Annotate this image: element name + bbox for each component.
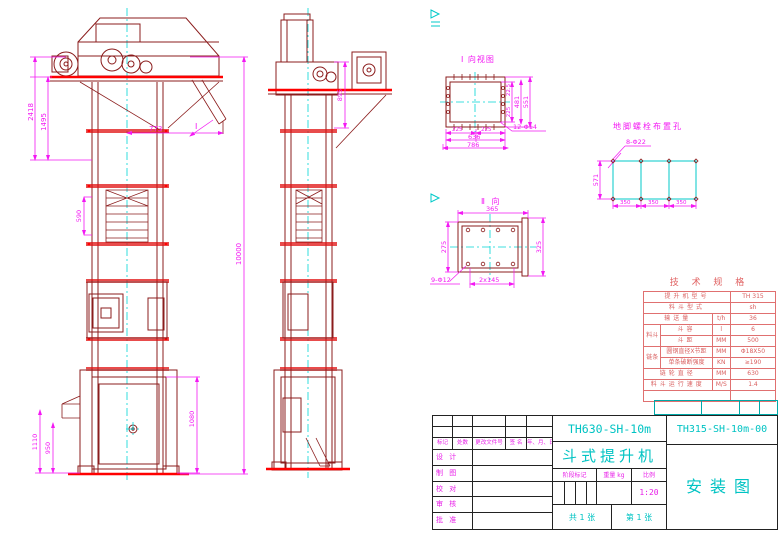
dim-571: 571 (592, 174, 600, 186)
view-i: I 向视图 225 225 636 786 22.5 225 481 551 1… (440, 54, 546, 150)
spec-label: 单条破断强度 (661, 358, 712, 369)
spec-unit: KN (712, 358, 730, 369)
view-ii: Ⅱ 向 365 325 275 2x145 9-Φ12 (430, 196, 546, 288)
rev-header-sign: 签 名 (506, 438, 527, 450)
dim-275: 275 (440, 241, 448, 253)
dim-1495: 1495 (40, 113, 48, 131)
spec-label: 斗容 (661, 325, 712, 336)
spec-unit: l (712, 325, 730, 336)
spec-label: 料斗运行速度 (644, 380, 713, 391)
table-row: 链条 圆钢直径X节距 MM Φ18X50 (644, 347, 776, 358)
scale-value: 1:20 (632, 482, 666, 504)
spec-label: 输送量 (644, 314, 713, 325)
sign-row-draft: 制 图 (433, 466, 473, 482)
dim-350b: 350 (648, 200, 659, 206)
rev-header-count: 处数 (453, 438, 473, 450)
view-mark-i: I (195, 122, 197, 131)
side-view: 895 (266, 8, 392, 478)
dim-350a: 350 (620, 200, 631, 206)
spec-value: sh (730, 303, 775, 314)
sheet-total: 共 1 张 (553, 504, 612, 530)
spec-label: 斗距 (661, 336, 712, 347)
drawing-name: 安装图 (667, 444, 777, 529)
leader-12-d14: 12-Φ14 (513, 123, 537, 131)
spec-unit: MM (712, 347, 730, 358)
dim-1110: 1110 (31, 434, 39, 451)
spec-group: 料斗 (644, 325, 661, 347)
rev-header-date: 年、月、日 (527, 438, 552, 450)
view-i-label: I 向视图 (461, 54, 495, 64)
rev-header-docno: 更改文件号 (473, 438, 506, 450)
dim-225b: 225 (481, 127, 492, 133)
cad-drawing-canvas: 2418 1495 590 773 10000 1110 950 1080 I … (0, 0, 780, 541)
dim-590: 590 (75, 210, 83, 222)
sign-row-approve: 批 准 (433, 513, 473, 529)
model-text: TH630-SH-10m (553, 416, 666, 442)
spec-table: 提升机型号 TH 315 料斗型式 sh 输送量 t/h 36 料斗 斗容 l … (643, 291, 776, 402)
spec-group: 链条 (644, 347, 661, 369)
spec-label: 料斗型式 (644, 303, 731, 314)
spec-unit: t/h (712, 314, 730, 325)
title-middle-block: TH630-SH-10m 斗式提升机 阶段标记 重量 kg 比例 1:20 共 … (552, 415, 667, 530)
dim-481: 481 (513, 96, 521, 108)
spec-table-section: 技 术 规 格 提升机型号 TH 315 料斗型式 sh 输送量 t/h 36 … (643, 275, 776, 402)
sign-row-check: 校 对 (433, 482, 473, 497)
weight-cell (597, 482, 632, 504)
revision-table: 标记 处数 更改文件号 签 名 年、月、日 设 计 制 图 校 对 审 核 批 … (432, 415, 553, 530)
spec-value: 630 (730, 369, 775, 380)
table-row: 料斗运行速度 M/S 1.4 (644, 380, 776, 391)
dim-895: 895 (336, 89, 344, 101)
front-view: 2418 1495 590 773 10000 1110 950 1080 I (27, 8, 248, 480)
sheet-number: 第 1 张 (612, 504, 666, 530)
spec-unit: MM (712, 369, 730, 380)
sign-row-design: 设 计 (433, 450, 473, 466)
dim-225v: 225 (506, 106, 512, 117)
table-row: 单条破断强度 KN ≥190 (644, 358, 776, 369)
dim-350c: 350 (676, 200, 687, 206)
dim-325: 325 (535, 241, 543, 253)
spec-table-title: 技 术 规 格 (643, 275, 776, 288)
spec-value: TH 315 (730, 292, 775, 303)
drawing-number: TH315-SH-10m-00 (667, 416, 777, 445)
spec-value: 36 (730, 314, 775, 325)
table-row: 料斗型式 sh (644, 303, 776, 314)
spec-value: 1.4 (730, 380, 775, 391)
stage-cells (553, 482, 597, 504)
spec-unit: M/S (712, 380, 730, 391)
border-mini-grid (654, 400, 778, 415)
dim-2418: 2418 (27, 103, 35, 121)
dim-365: 365 (486, 205, 498, 213)
dim-950: 950 (44, 442, 52, 454)
spec-label: 提升机型号 (644, 292, 731, 303)
rev-header-mark: 标记 (433, 438, 453, 450)
sign-row-review: 审 核 (433, 497, 473, 513)
spec-value: 500 (730, 336, 775, 347)
table-row: 料斗 斗容 l 6 (644, 325, 776, 336)
stage-label: 阶段标记 (553, 469, 597, 482)
dim-551: 551 (522, 96, 530, 108)
dim-1080: 1080 (188, 411, 196, 428)
spec-label: 链轮直径 (644, 369, 713, 380)
spec-label: 圆钢直径X节距 (661, 347, 712, 358)
leader-8-d22: 8-Φ22 (626, 138, 646, 146)
weight-label: 重量 kg (597, 469, 632, 482)
dim-10000: 10000 (235, 243, 243, 265)
table-row: 链轮直径 MM 630 (644, 369, 776, 380)
anchor-label: 地脚螺栓布置孔 (613, 121, 683, 131)
dim-636: 636 (468, 133, 480, 141)
spec-unit: MM (712, 336, 730, 347)
fold-marks (431, 10, 440, 202)
dim-786: 786 (467, 141, 479, 149)
dim-773: 773 (149, 125, 162, 133)
title-right-block: TH315-SH-10m-00 安装图 (666, 415, 778, 530)
scale-label: 比例 (632, 469, 666, 482)
product-name: 斗式提升机 (553, 443, 666, 469)
dim-2x145: 2x145 (479, 276, 499, 284)
dim-22_5: 22.5 (506, 83, 512, 96)
table-row: 提升机型号 TH 315 (644, 292, 776, 303)
spec-value: ≥190 (730, 358, 775, 369)
spec-value: Φ18X50 (730, 347, 775, 358)
dim-225a: 225 (452, 127, 463, 133)
table-row: 输送量 t/h 36 (644, 314, 776, 325)
anchor-bolt-plan: 地脚螺栓布置孔 8-Φ22 350 350 350 571 (592, 121, 698, 209)
table-row: 斗距 MM 500 (644, 336, 776, 347)
title-block: 标记 处数 更改文件号 签 名 年、月、日 设 计 制 图 校 对 审 核 批 … (432, 415, 778, 530)
spec-value: 6 (730, 325, 775, 336)
leader-9-d12: 9-Φ12 (431, 276, 451, 284)
